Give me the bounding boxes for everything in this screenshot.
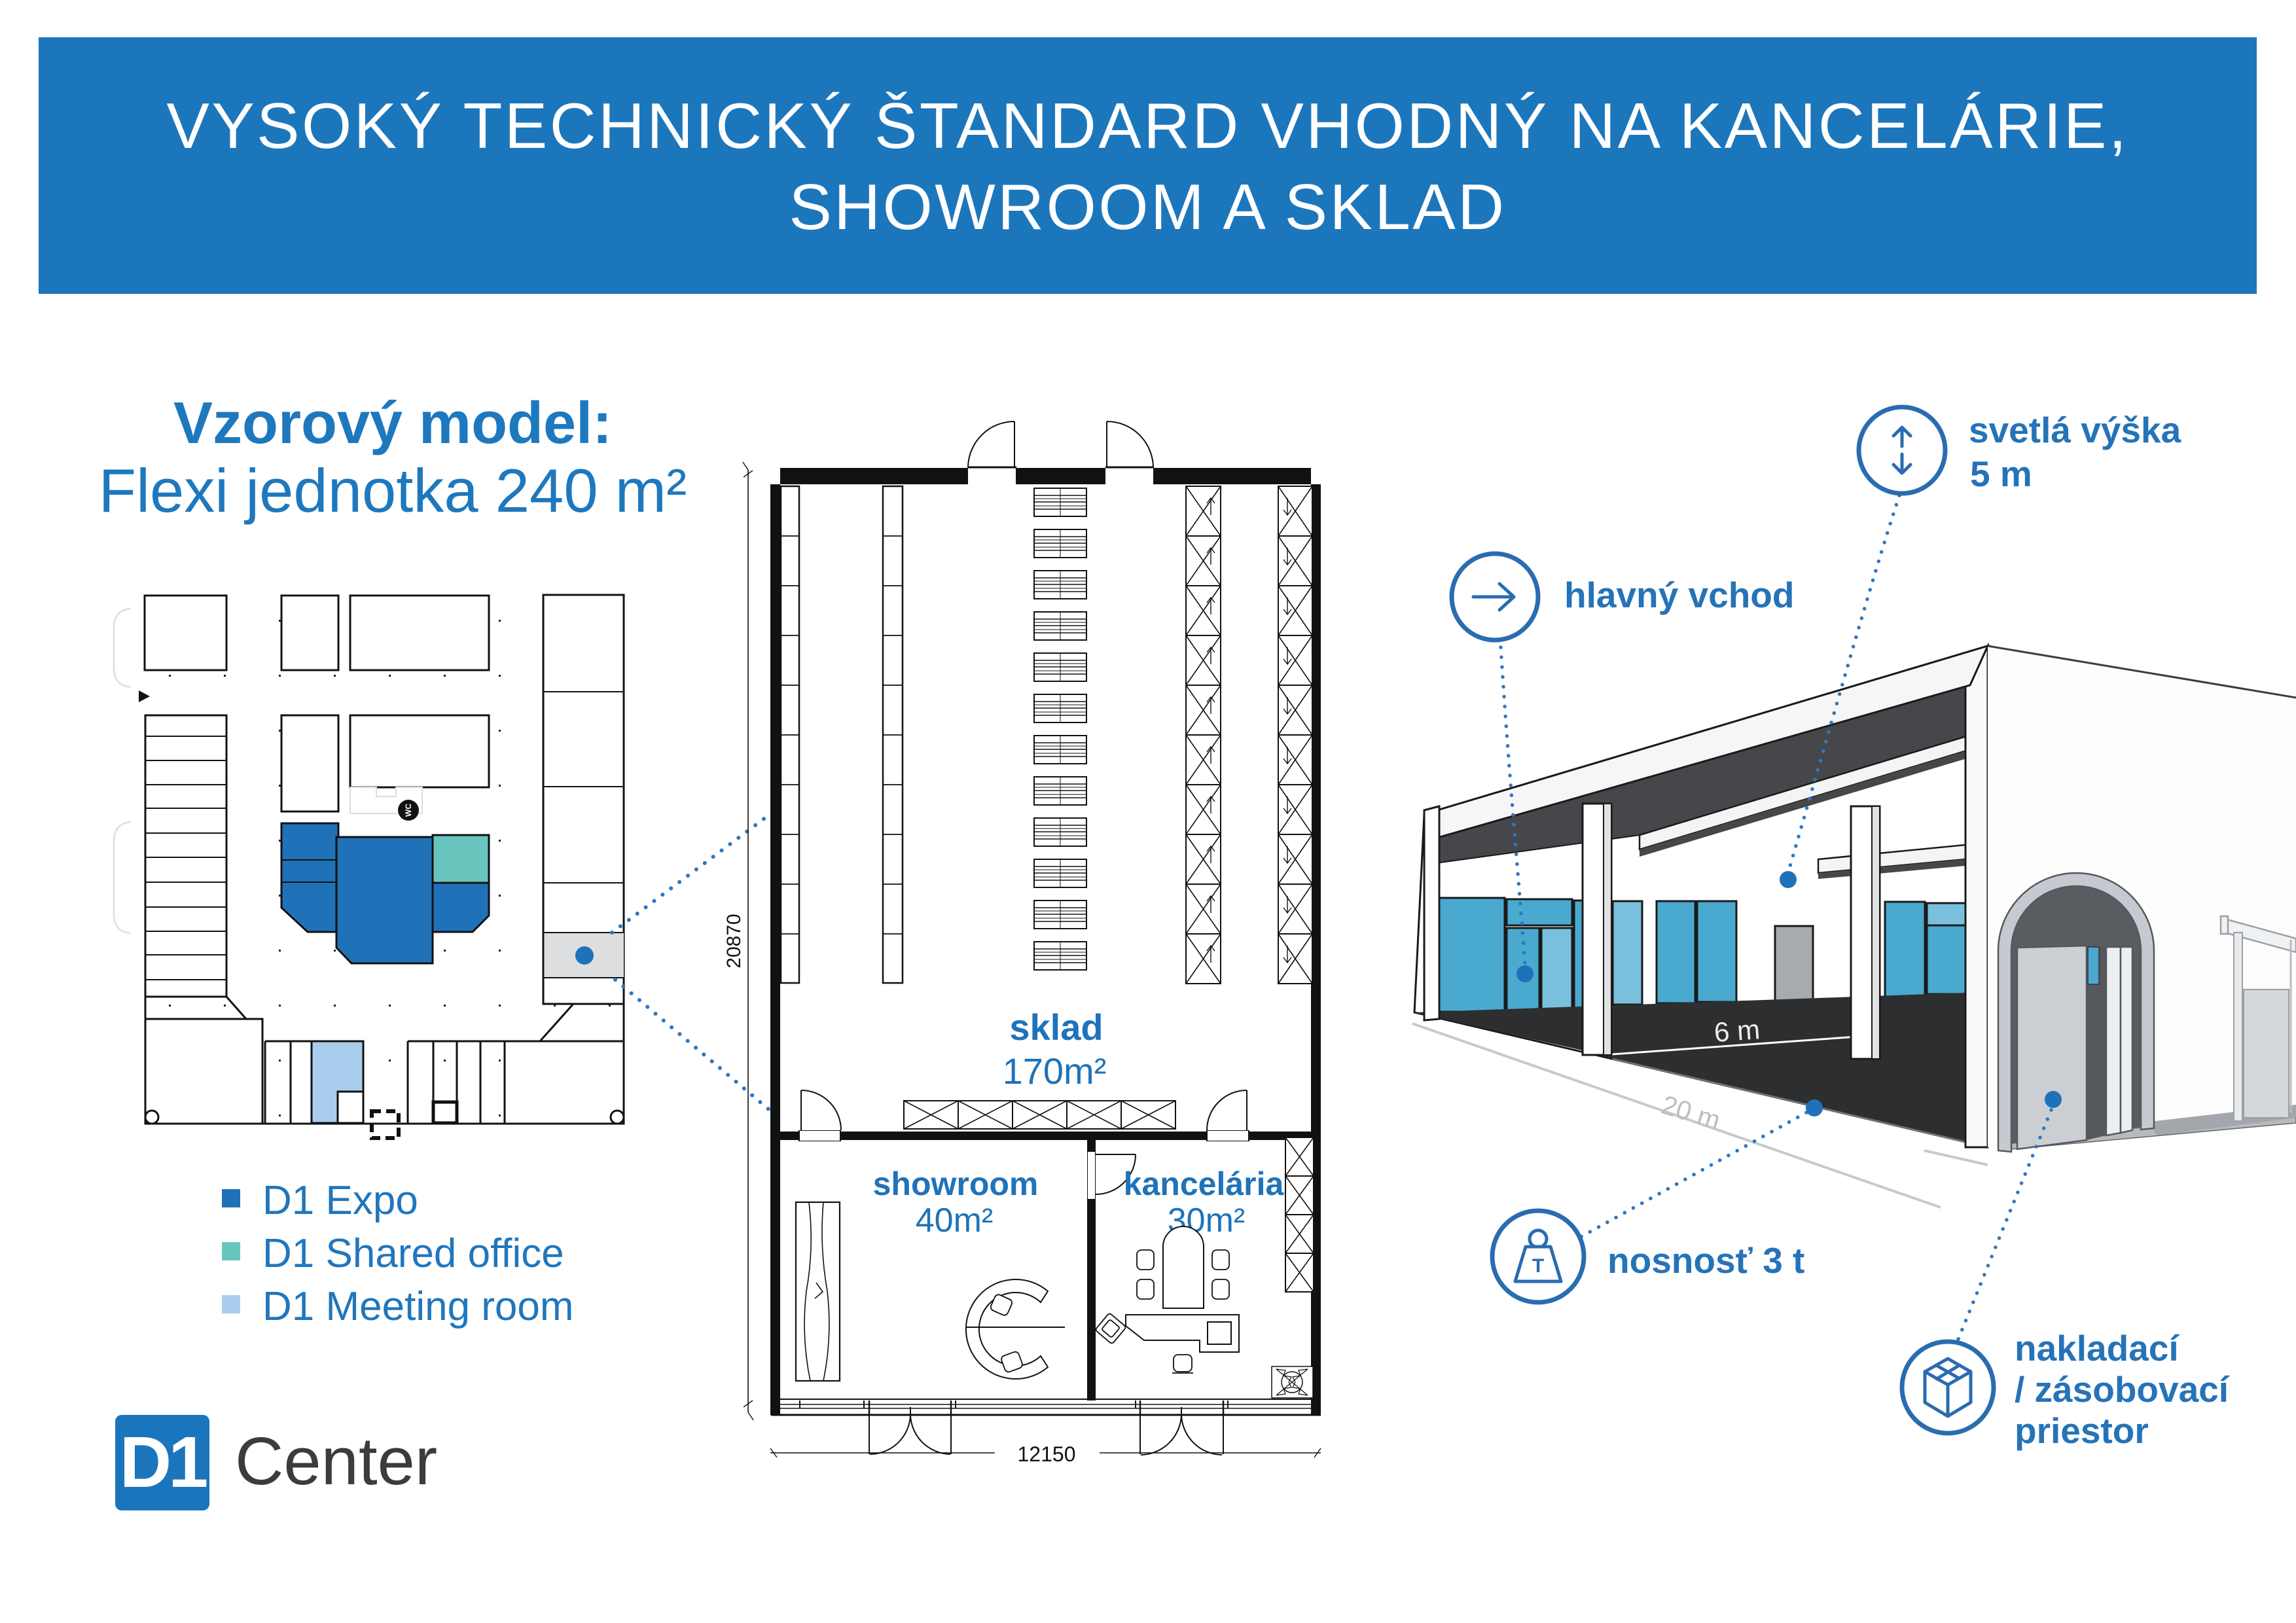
svg-text:nosnosť 3 t: nosnosť 3 t	[1607, 1240, 1804, 1281]
svg-text:nakladací: nakladací	[2015, 1328, 2179, 1368]
svg-text:20 m: 20 m	[1658, 1090, 1724, 1136]
svg-text:kancelária: kancelária	[1124, 1166, 1285, 1202]
svg-text:12150: 12150	[1018, 1442, 1076, 1466]
svg-text:priestor: priestor	[2015, 1410, 2149, 1451]
svg-text:hlavný vchod: hlavný vchod	[1564, 575, 1794, 615]
svg-text:20870: 20870	[723, 914, 745, 968]
svg-text:5 m: 5 m	[1970, 454, 2032, 494]
svg-text:showroom: showroom	[873, 1166, 1039, 1202]
svg-text:40m²: 40m²	[916, 1202, 993, 1240]
svg-text:sklad: sklad	[1009, 1007, 1103, 1048]
svg-text:svetlá výška: svetlá výška	[1969, 410, 2181, 450]
svg-text:/ zásobovací: / zásobovací	[2015, 1369, 2230, 1410]
svg-text:6 m: 6 m	[1713, 1014, 1761, 1048]
svg-text:T: T	[1532, 1255, 1544, 1277]
svg-text:WC: WC	[404, 804, 413, 817]
svg-text:170m²: 170m²	[1003, 1050, 1107, 1092]
